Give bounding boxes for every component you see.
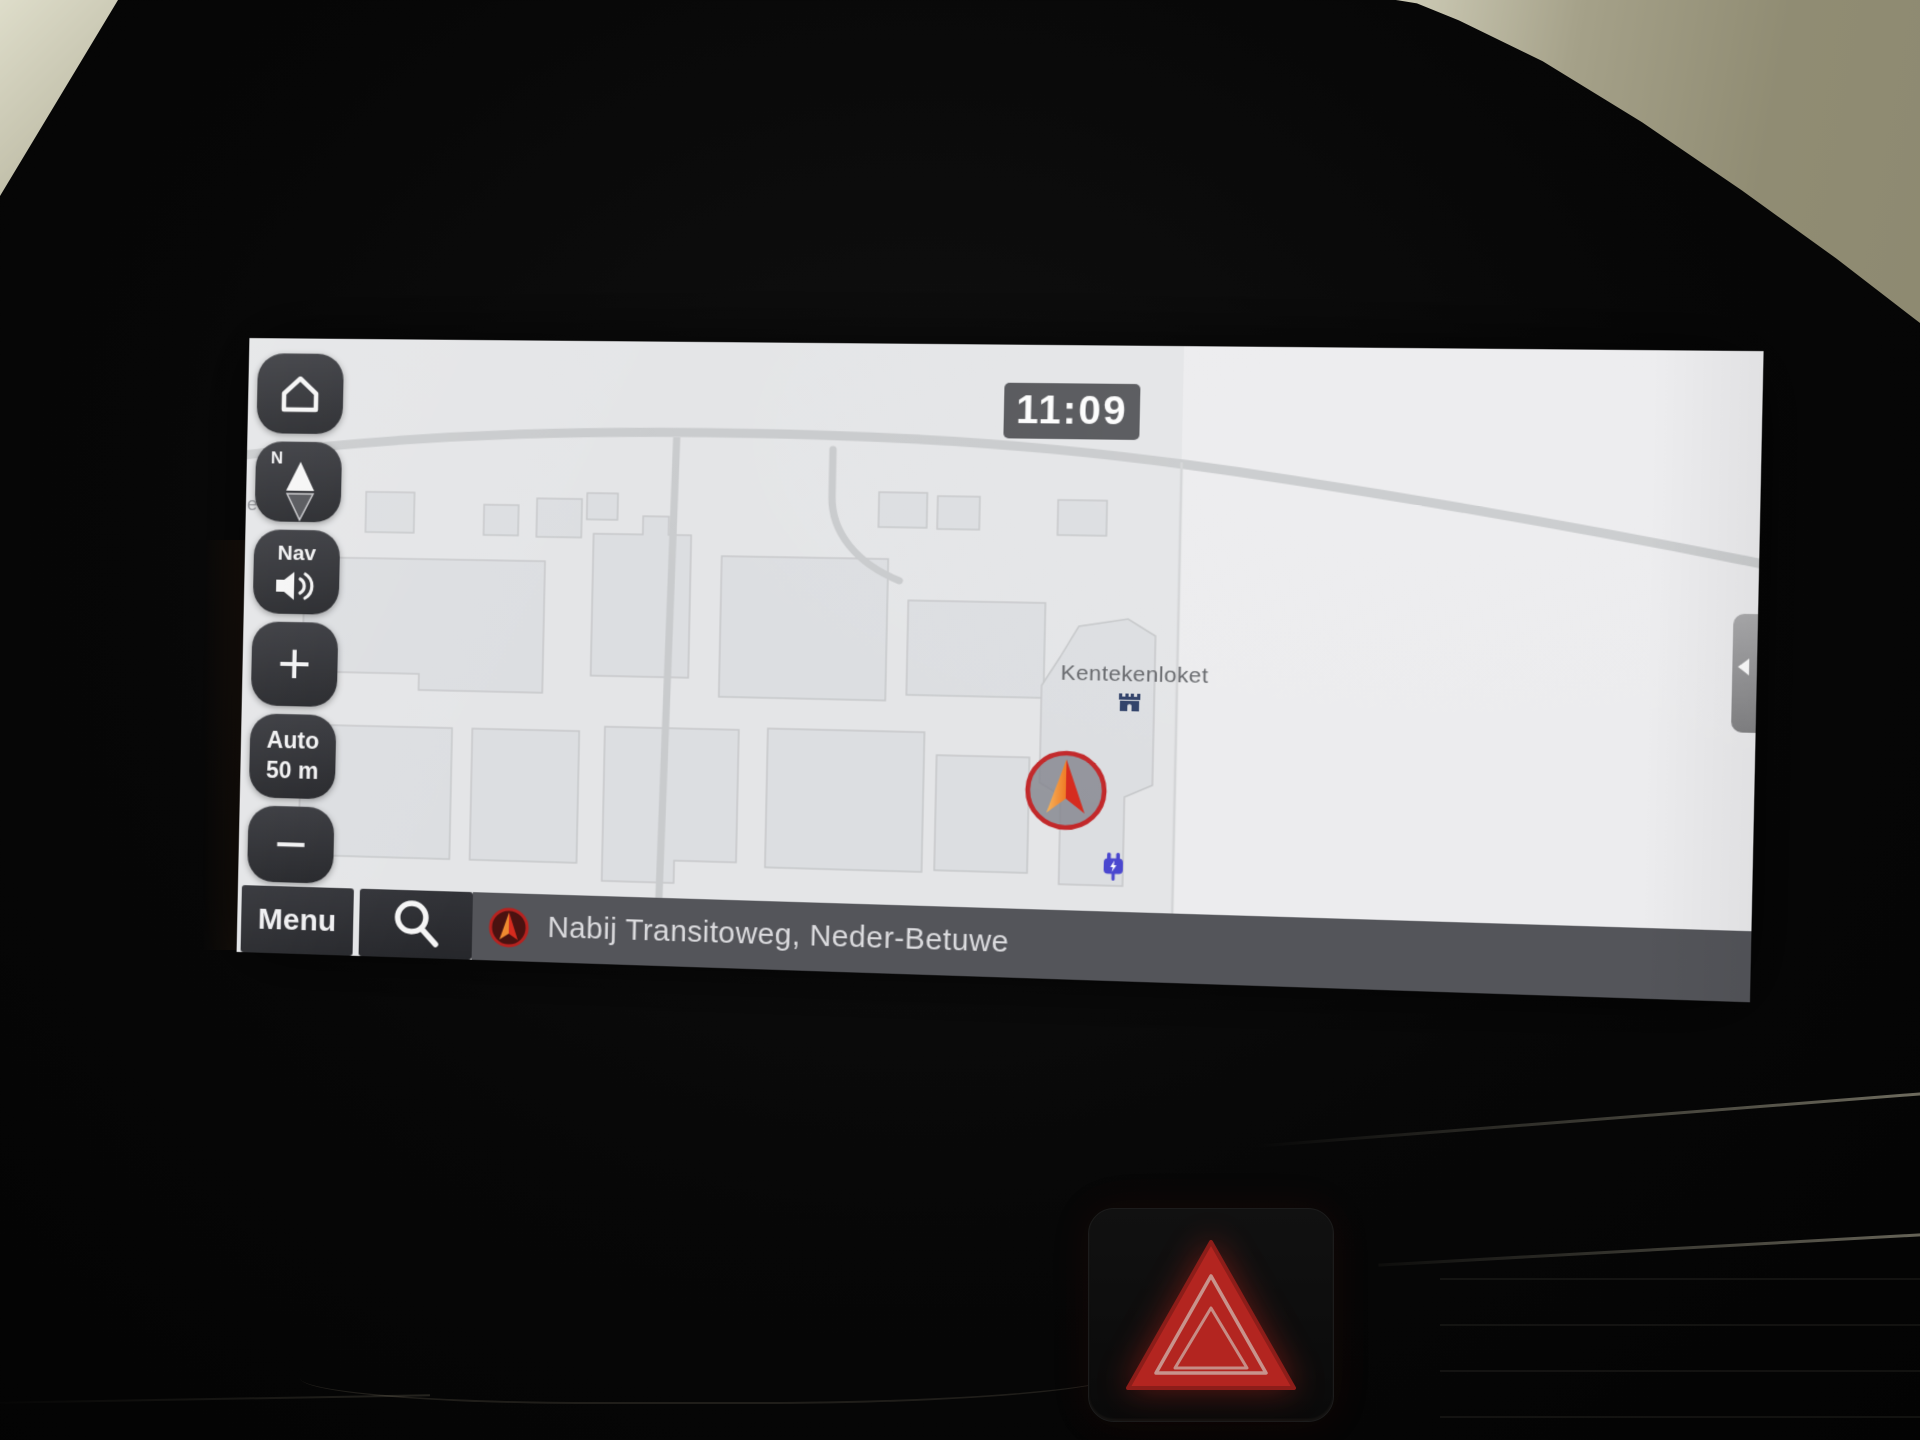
- home-button[interactable]: [256, 353, 344, 434]
- speaker-icon: [272, 568, 321, 603]
- zoom-in-label: +: [278, 664, 312, 665]
- dashboard-trim-line: [1256, 1091, 1920, 1147]
- infotainment-screen: 11:09 e Kentekenloket: [237, 338, 1764, 1002]
- chevron-left-icon: [1738, 658, 1750, 675]
- compass-needle-icon: [255, 441, 343, 522]
- clock-badge: 11:09: [1003, 383, 1140, 440]
- dashboard-trim-curve: [300, 1330, 1130, 1404]
- magnifier-icon: [359, 889, 473, 960]
- hazard-triangle-icon: [1116, 1230, 1306, 1400]
- scale-mode-label: Auto: [266, 726, 319, 757]
- air-vent-slats: [1440, 1278, 1920, 1440]
- map-slide-tab[interactable]: [1731, 614, 1760, 733]
- menu-label: Menu: [258, 902, 337, 939]
- home-icon: [275, 371, 326, 416]
- current-location-text: Nabij Transitoweg, Neder-Betuwe: [547, 912, 1009, 960]
- zoom-out-button[interactable]: −: [247, 805, 335, 884]
- poi-label: Kentekenloket: [1033, 661, 1236, 690]
- heading-arrow-icon: [486, 904, 532, 950]
- nav-volume-button[interactable]: Nav: [253, 529, 341, 615]
- hazard-lights-button[interactable]: [1088, 1208, 1334, 1422]
- compass-button[interactable]: N: [255, 441, 343, 522]
- infotainment-screen-wrap: 11:09 e Kentekenloket: [237, 338, 1764, 1002]
- background-wall-top-right: [1396, 0, 1920, 340]
- public-building-icon: [1116, 689, 1142, 714]
- zoom-out-label: −: [274, 844, 307, 845]
- dashboard-trim-line: [1378, 1232, 1920, 1266]
- zoom-in-button[interactable]: +: [251, 621, 339, 707]
- dashboard-trim-line: [0, 1394, 430, 1404]
- nav-volume-label: Nav: [277, 541, 316, 566]
- ev-charger-icon: [1101, 852, 1125, 884]
- current-position-marker: [1020, 746, 1111, 835]
- map-scale-button[interactable]: Auto 50 m: [249, 713, 337, 799]
- compass-cardinal-label: N: [271, 448, 284, 468]
- menu-button[interactable]: Menu: [241, 885, 354, 956]
- background-wall-top-left: [0, 0, 150, 230]
- scale-distance-label: 50 m: [266, 756, 319, 787]
- search-button[interactable]: [359, 889, 473, 960]
